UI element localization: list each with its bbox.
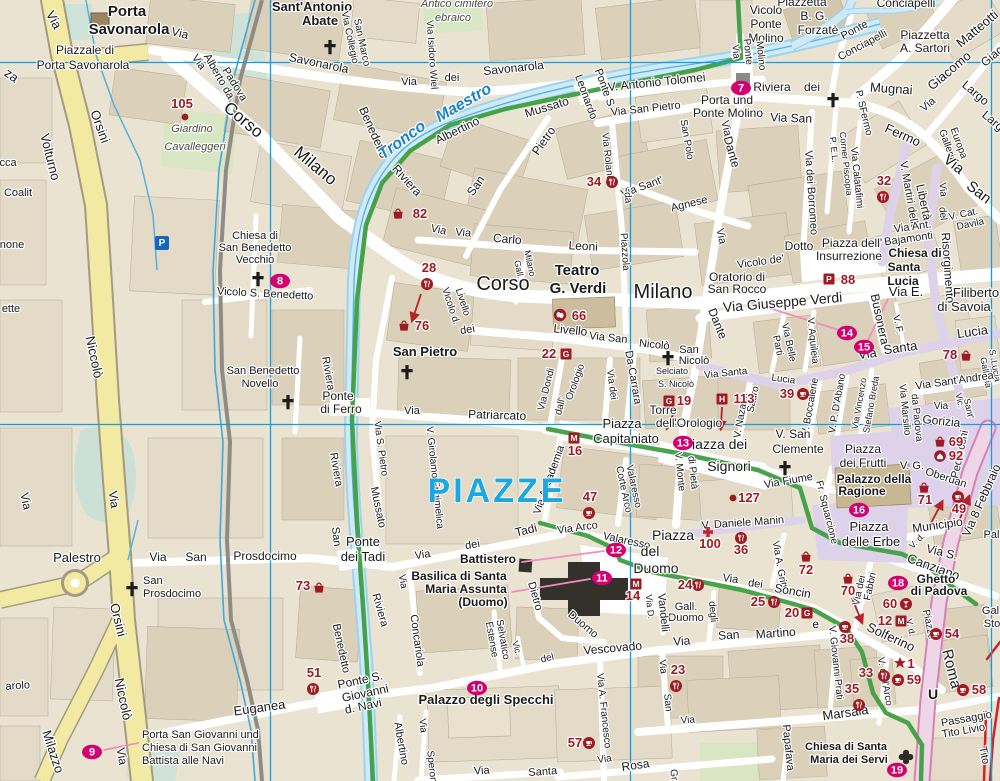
- poi-number: 72: [799, 562, 813, 577]
- street-label: Via E.: [889, 284, 923, 299]
- poi-number: 78: [943, 347, 957, 362]
- poi-number: 32: [877, 173, 891, 188]
- poi-number: 76: [415, 318, 429, 333]
- street-label: Via: [149, 550, 166, 564]
- cafe-icon: [797, 388, 809, 400]
- street-label: Novello: [242, 378, 279, 390]
- street-label: Conciapelli: [877, 0, 936, 10]
- street-label: Piazza: [602, 416, 642, 431]
- street-label: Porta Savonarola: [37, 58, 130, 72]
- sight-number: 15: [858, 342, 870, 354]
- cafe-icon: [583, 737, 595, 749]
- street-label: none: [0, 239, 24, 251]
- poi-number: 60: [883, 596, 897, 611]
- street-label: Selciato: [656, 366, 688, 376]
- street-label: Via: [416, 718, 428, 734]
- museum-icon: M: [896, 616, 907, 627]
- street-label: Ponte: [750, 17, 782, 31]
- poi-marker: 58: [957, 682, 986, 697]
- street-label: Milano: [634, 281, 693, 303]
- street-label: U: [928, 686, 938, 702]
- poi-number: 88: [841, 272, 855, 287]
- street-label: Duomo: [668, 612, 703, 624]
- restaurant-icon: [878, 670, 890, 682]
- street-label: Prosdocimo: [233, 549, 297, 563]
- sight-number: 18: [892, 578, 904, 590]
- street-label: Antico cimitero: [420, 0, 493, 10]
- poi-number: 33: [859, 665, 873, 680]
- street-label: San Rocco: [708, 282, 767, 296]
- poi-number: 66: [572, 308, 586, 323]
- svg-text:G: G: [804, 608, 811, 618]
- street-label: Basilica di Santa: [411, 569, 507, 583]
- piazze-label: PIAZZE: [428, 472, 567, 510]
- theatre-icon: [554, 309, 566, 321]
- sight-marker: 9: [82, 745, 102, 760]
- street-label: Gr: [667, 769, 679, 781]
- street-label: San Pietro: [393, 344, 457, 359]
- poi-number: 82: [413, 206, 427, 221]
- poi-number: 25: [751, 594, 765, 609]
- poi-number: 20: [785, 605, 799, 620]
- street-label: Maria dei Servi: [810, 754, 888, 766]
- city-map: ViaPortaSavonarolaPiazzale diPorta Savon…: [0, 0, 1000, 781]
- street-label: Maria Assunta: [425, 582, 507, 596]
- restaurant-icon: [877, 191, 889, 203]
- poi-number: 47: [583, 489, 597, 504]
- street-label: di Ferro: [320, 402, 362, 416]
- poi-marker: G19: [664, 393, 692, 408]
- street-label: da: [621, 192, 633, 205]
- street-label: Coalit: [4, 187, 32, 199]
- restaurant-icon: [768, 596, 780, 608]
- hotel-icon: H: [717, 394, 728, 405]
- street-label: Piazza dell': [822, 236, 882, 250]
- poi-number: 92: [949, 448, 963, 463]
- street-label: Riviera: [753, 80, 791, 94]
- street-label: del: [641, 543, 660, 559]
- cafe-icon: [957, 684, 969, 696]
- street-label: Forzatè: [798, 23, 839, 37]
- street-label: San: [661, 693, 674, 712]
- street-label: Pal.: [984, 529, 1000, 541]
- street-label: Via: [404, 405, 421, 417]
- street-label: di Savoia: [937, 299, 991, 314]
- parking-icon: P: [824, 274, 835, 285]
- poi-marker: G20: [785, 605, 813, 620]
- street-label: Savonarola: [89, 21, 171, 38]
- street-label: dei: [804, 80, 820, 94]
- poi-number: 35: [845, 681, 859, 696]
- svg-text:H: H: [719, 394, 725, 404]
- svg-text:P: P: [159, 238, 166, 249]
- sight-marker: 18: [888, 576, 908, 591]
- street-label: Via: [114, 747, 131, 767]
- street-label: degli: [706, 601, 719, 623]
- sight-marker: 10: [467, 681, 487, 696]
- poi-number: 38: [840, 631, 854, 646]
- poi-marker: 59: [892, 672, 921, 687]
- dot-icon: [182, 114, 189, 121]
- street-label: (Duomo): [458, 595, 507, 609]
- poi-number: 59: [907, 672, 921, 687]
- gallery-icon: G: [561, 349, 572, 360]
- street-label: Piazza: [849, 519, 889, 534]
- sight-marker: 11: [592, 571, 612, 586]
- sight-number: 9: [89, 747, 95, 759]
- poi-marker: H113: [717, 391, 755, 406]
- poi-number: 57: [568, 735, 582, 750]
- museum-icon: M: [569, 433, 580, 444]
- street-label: Via: [597, 753, 613, 766]
- poi-number: 16: [568, 443, 582, 458]
- parking-icon: P: [155, 236, 169, 250]
- street-label: San: [718, 627, 740, 642]
- poi-number: 73: [296, 578, 310, 593]
- poi-number: 24: [678, 577, 693, 592]
- street-label: Clemente: [772, 442, 824, 456]
- street-label: Duomo: [633, 560, 678, 576]
- poi-number: 22: [542, 346, 556, 361]
- street-label: San: [329, 526, 343, 547]
- sight-marker: 14: [837, 326, 857, 341]
- poi-number: 100: [699, 536, 721, 551]
- street-label: Filiberto: [953, 285, 999, 300]
- poi-number: 36: [734, 542, 748, 557]
- sight-marker: 16: [849, 503, 869, 518]
- cafe-icon: [930, 628, 942, 640]
- street-label: Cavalleggeri: [164, 141, 226, 153]
- gallery-icon: G: [664, 396, 675, 407]
- street-label: Palestro: [53, 550, 101, 565]
- street-label: e: [812, 617, 820, 631]
- sight-number: 12: [610, 545, 622, 557]
- street-label: Via: [414, 548, 432, 562]
- street-label: B. G.: [800, 9, 827, 23]
- street-label: Via: [680, 714, 695, 726]
- street-label: Piazzetta: [900, 28, 950, 42]
- poi-number: 19: [677, 393, 691, 408]
- street-label: Patriarcato: [468, 407, 527, 423]
- street-label: Via: [936, 182, 948, 198]
- restaurant-icon: [692, 579, 704, 591]
- street-label: Via: [656, 659, 668, 675]
- poi-number: 51: [307, 665, 321, 680]
- bar-icon: [900, 598, 912, 610]
- restaurant-icon: [307, 683, 319, 695]
- street-label: Santa: [888, 260, 921, 274]
- street-label: arolo: [5, 679, 30, 693]
- poi-marker: P: [155, 236, 169, 250]
- street-label: Vecchio: [236, 254, 275, 266]
- poi-number: 14: [626, 588, 641, 603]
- street-label: di Padova: [911, 584, 968, 598]
- street-label: San: [143, 575, 163, 587]
- street-label: Ragione: [838, 484, 886, 498]
- street-label: Prosdocimo: [143, 588, 201, 600]
- poi-marker: 54: [930, 626, 960, 641]
- street-label: S. Nicolò: [658, 379, 694, 389]
- street-label: Via: [722, 572, 740, 586]
- street-label: Capitaniato: [593, 431, 659, 446]
- street-label: G. Verdi: [550, 280, 607, 297]
- street-label: A. Sartori: [900, 41, 950, 55]
- sight-number: 19: [891, 765, 903, 777]
- street-label: Chiesa di: [888, 246, 941, 260]
- svg-text:M: M: [897, 616, 904, 626]
- cafe-icon: [583, 507, 595, 519]
- street-label: San Benedetto: [227, 365, 300, 377]
- restaurant-icon: [421, 278, 433, 290]
- street-label: V. G.: [900, 460, 924, 472]
- street-label: dell'Orologio: [656, 416, 723, 430]
- street-label: Palazzo degli Specchi: [418, 692, 553, 707]
- street-label: Battista alle Navi: [142, 755, 224, 767]
- poi-number: 54: [945, 626, 960, 641]
- poi-number: 34: [587, 174, 602, 189]
- poi-number: 39: [780, 386, 794, 401]
- street-label: cca: [0, 157, 17, 169]
- street-label: Piazzetta: [777, 0, 827, 9]
- street-label: Mugnai: [870, 80, 914, 98]
- street-label: Porta: [108, 3, 147, 20]
- street-label: Via: [934, 401, 949, 412]
- street-label: ebraico: [435, 12, 471, 24]
- street-label: Piazza: [845, 442, 881, 456]
- street-label: Santa: [528, 765, 558, 779]
- street-label: Piazzale di: [56, 43, 114, 57]
- poi-marker: 36: [734, 532, 748, 557]
- street-label: Via: [474, 764, 491, 777]
- restaurant-icon: [606, 176, 618, 188]
- poi-number: 69: [949, 434, 963, 449]
- street-label: delle Erbe: [842, 534, 901, 549]
- street-label: Carlo: [492, 231, 522, 247]
- street-label: Giardino: [171, 123, 213, 135]
- street-label: Piazza: [652, 527, 694, 543]
- gallery-icon: G: [802, 608, 813, 619]
- street-label: Chiesa di: [232, 230, 278, 242]
- street-label: V. San: [776, 427, 811, 441]
- street-label: Via: [106, 490, 122, 509]
- poi-number: 113: [734, 391, 755, 406]
- street-label: Ponte: [322, 389, 354, 403]
- street-label: San Benedetto: [219, 242, 292, 254]
- street-label: Via: [673, 633, 691, 648]
- sight-marker: 12: [606, 543, 626, 558]
- street-label: San: [185, 550, 206, 564]
- street-label: dei: [445, 72, 460, 84]
- cafe-icon: [892, 674, 904, 686]
- street-label: Stori: [984, 618, 1000, 630]
- restaurant-icon: [853, 699, 865, 711]
- sight-number: 11: [596, 573, 608, 585]
- svg-text:G: G: [563, 349, 570, 359]
- street-label: Gal.: [982, 605, 1000, 617]
- sight-number: 7: [738, 83, 744, 95]
- street-label: Martino: [755, 625, 796, 642]
- sight-number: 10: [471, 683, 483, 695]
- street-label: del: [936, 207, 948, 221]
- street-label: Battistero: [460, 552, 516, 566]
- hotel-icon: [934, 450, 946, 462]
- street-label: Via: [401, 76, 418, 88]
- poi-number: 12: [878, 613, 892, 628]
- svg-text:G: G: [666, 396, 673, 406]
- street-label: dei Frutti: [840, 456, 887, 470]
- street-label: Via: [729, 44, 741, 60]
- poi-number: 70: [841, 583, 855, 598]
- sight-marker: 8: [270, 274, 290, 289]
- sight-marker: 13: [673, 436, 693, 451]
- sight-marker: 7: [731, 81, 751, 96]
- street-label: Leoni: [568, 238, 598, 254]
- poi-number: 1: [907, 656, 914, 671]
- sight-marker: 15: [854, 340, 874, 355]
- street-label: Porta San Giovanni und: [142, 729, 259, 741]
- street-label: dei: [464, 538, 481, 552]
- street-label: Via: [455, 226, 473, 239]
- restaurant-icon: [670, 680, 682, 692]
- poi-number: 105: [171, 96, 193, 111]
- sight-number: 13: [677, 438, 689, 450]
- sight-number: 16: [853, 505, 865, 517]
- poi-marker: M12: [878, 613, 907, 628]
- street-label: ette: [2, 303, 20, 315]
- street-label: Signori: [707, 458, 751, 474]
- street-label: Via San: [770, 110, 812, 125]
- street-label: Teatro: [555, 262, 600, 279]
- street-label: Dotto: [785, 239, 814, 253]
- poi-number: 23: [671, 662, 685, 677]
- svg-text:P: P: [826, 274, 832, 284]
- svg-text:M: M: [570, 433, 577, 443]
- street-label: Porta und: [701, 93, 753, 107]
- dot-icon: [730, 495, 737, 502]
- street-label: Abate: [302, 13, 338, 28]
- sight-number: 8: [277, 276, 283, 288]
- poi-number: 127: [738, 490, 760, 505]
- street-label: Ponte: [346, 534, 380, 549]
- poi-number: 28: [422, 260, 436, 275]
- sight-number: 14: [841, 328, 854, 340]
- street-label: Chiesa di San Giovanni: [142, 742, 257, 754]
- street-label: Insurrezione: [816, 249, 882, 263]
- street-label: dei: [459, 323, 476, 337]
- street-label: dei Tadi: [341, 549, 386, 564]
- sight-marker: 19: [887, 763, 907, 778]
- poi-number: 49: [952, 501, 966, 516]
- street-label: dei: [747, 577, 763, 591]
- poi-number: 71: [918, 492, 932, 507]
- poi-number: 58: [972, 682, 986, 697]
- street-label: Chiesa di Santa: [805, 741, 888, 753]
- street-label: Ponte Molino: [693, 106, 763, 120]
